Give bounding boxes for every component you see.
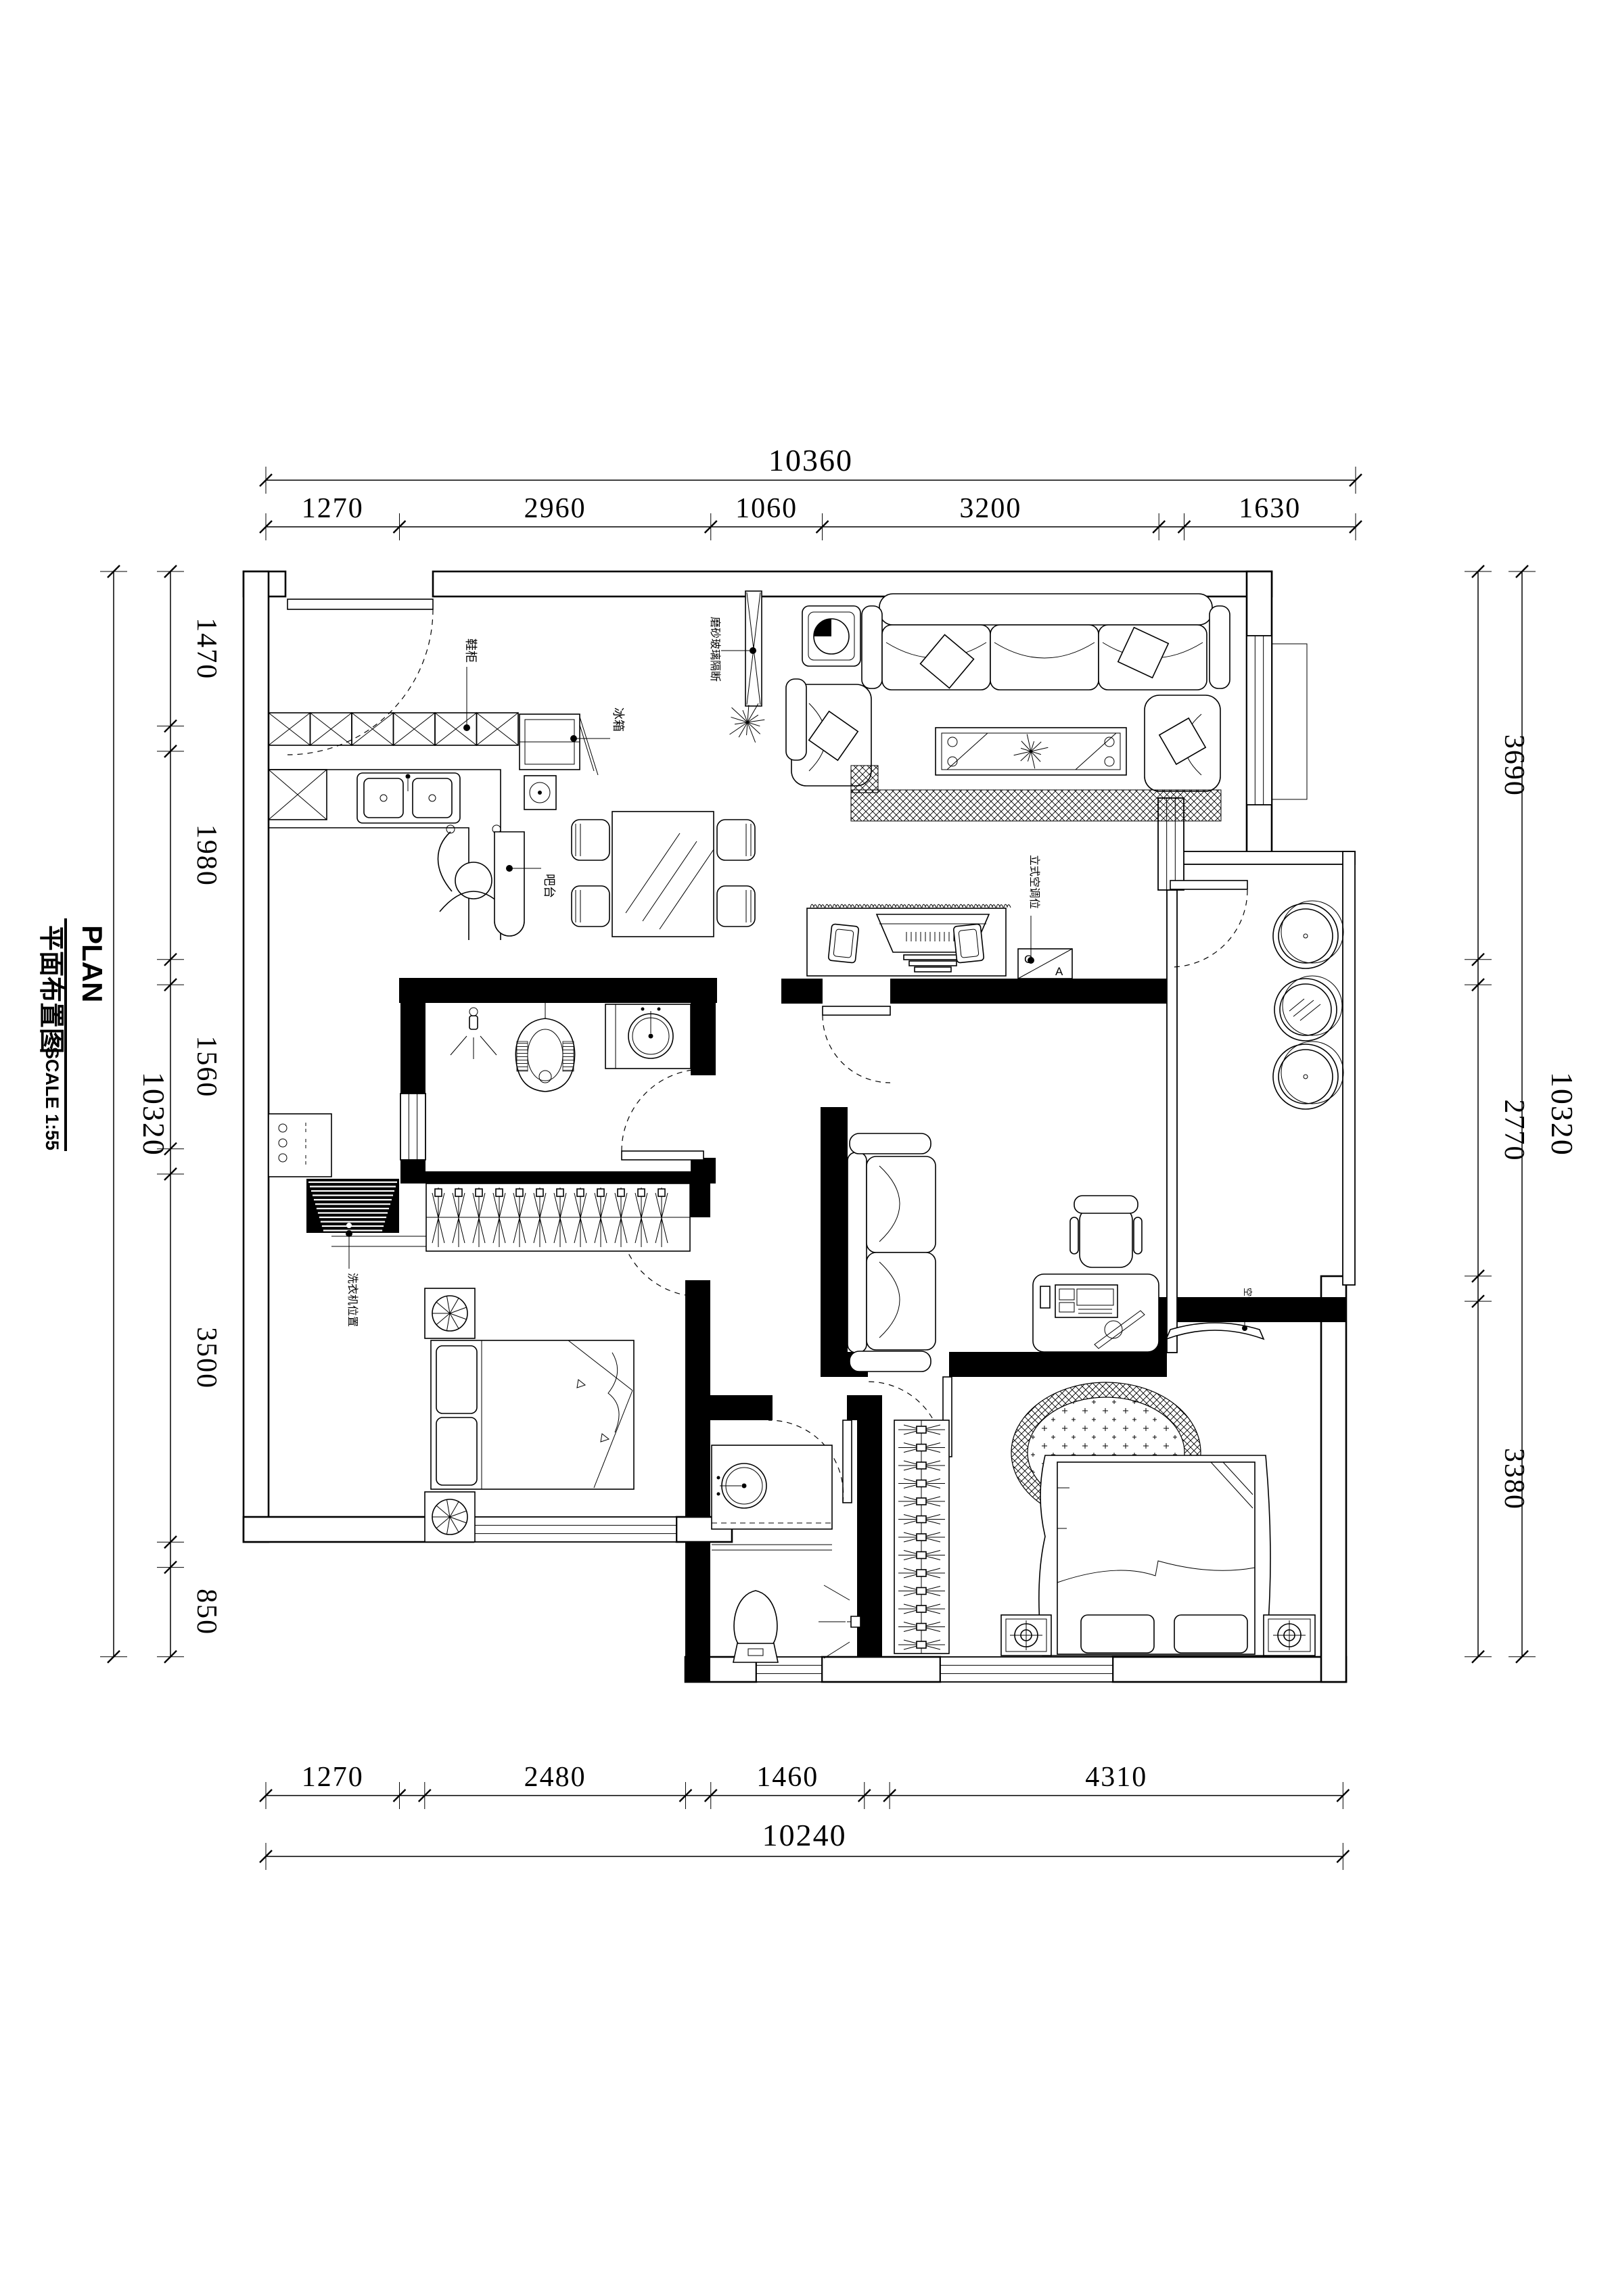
svg-text:洗衣机位置: 洗衣机位置 bbox=[346, 1273, 359, 1327]
side-table-clock bbox=[802, 606, 860, 666]
wall-mid-bottom-b bbox=[949, 1352, 1167, 1377]
svg-text:3500: 3500 bbox=[191, 1327, 222, 1389]
svg-text:4310: 4310 bbox=[1085, 1762, 1147, 1793]
wall-tv-a bbox=[781, 979, 823, 1004]
svg-text:3690: 3690 bbox=[1498, 734, 1529, 797]
wall-bath1-bottom bbox=[400, 1171, 716, 1184]
wall-bath2-left bbox=[685, 1542, 710, 1682]
wall-tv-c bbox=[1109, 979, 1167, 1004]
svg-text:吧台: 吧台 bbox=[543, 874, 556, 898]
shower-head-icon bbox=[451, 1008, 497, 1059]
bed2 bbox=[431, 1340, 634, 1489]
wall-left bbox=[244, 571, 269, 1542]
mid-room-door bbox=[823, 1006, 890, 1083]
wall-bed2-right bbox=[685, 1280, 710, 1517]
computer-desk bbox=[1033, 1274, 1159, 1352]
shoe-cabinet bbox=[269, 713, 518, 745]
wall-ac-unit bbox=[1166, 1323, 1264, 1339]
wall-balcony-right bbox=[1343, 851, 1355, 1285]
sofa-three-seat bbox=[862, 594, 1230, 690]
wall-bath1-right-a bbox=[691, 1003, 716, 1075]
living-room: C A bbox=[730, 591, 1230, 979]
plant-pot bbox=[1274, 976, 1342, 1041]
dining-chair bbox=[572, 820, 609, 860]
balcony-door bbox=[1170, 881, 1247, 967]
svg-text:1470: 1470 bbox=[191, 617, 222, 680]
svg-text:磨砂玻璃隔断: 磨砂玻璃隔断 bbox=[709, 617, 721, 682]
svg-text:3380: 3380 bbox=[1498, 1448, 1529, 1510]
svg-text:冰箱: 冰箱 bbox=[612, 707, 625, 732]
wall-tv-b bbox=[890, 979, 1109, 1004]
nightstand bbox=[425, 1492, 475, 1542]
svg-text:10360: 10360 bbox=[768, 443, 853, 477]
plant bbox=[730, 703, 765, 742]
bar-counter bbox=[494, 832, 524, 936]
bath1-door bbox=[622, 1069, 704, 1160]
svg-text:1270: 1270 bbox=[302, 1762, 364, 1793]
wall-bath1-top bbox=[399, 978, 717, 1003]
title-scale: SCALE 1:55 bbox=[42, 1047, 62, 1150]
wall-bath1-left-a bbox=[400, 1003, 425, 1094]
dining-chair bbox=[572, 886, 609, 927]
bay-window-outline bbox=[1272, 644, 1307, 799]
svg-text:850: 850 bbox=[191, 1589, 222, 1635]
svg-text:1270: 1270 bbox=[302, 493, 364, 524]
dining-set bbox=[572, 812, 755, 937]
svg-text:1980: 1980 bbox=[191, 824, 222, 887]
master-wardrobe bbox=[894, 1420, 949, 1654]
wall-right-lower bbox=[1321, 1276, 1346, 1682]
label-washer: 洗衣机位置 bbox=[346, 1230, 359, 1327]
label-floor-ac: 立式空调位 bbox=[1028, 855, 1040, 964]
fridge bbox=[520, 714, 598, 775]
desk-chair bbox=[1070, 1196, 1142, 1267]
bath1-basin bbox=[605, 1004, 691, 1069]
shower-head-icon bbox=[819, 1585, 860, 1658]
title-block: PLAN 平面布置图 SCALE 1:55 bbox=[37, 918, 108, 1151]
speaker bbox=[953, 924, 984, 963]
washing-machine bbox=[306, 1179, 399, 1233]
nightstand bbox=[1001, 1615, 1051, 1656]
master-bed bbox=[1039, 1455, 1270, 1656]
title-plan-en: PLAN bbox=[76, 925, 108, 1002]
svg-text:2480: 2480 bbox=[524, 1762, 586, 1793]
kitchen-sink bbox=[357, 773, 460, 823]
dining-chair bbox=[717, 886, 755, 927]
speaker bbox=[828, 924, 858, 963]
armchair bbox=[1145, 695, 1220, 791]
wall-bath2-top-b bbox=[847, 1395, 882, 1420]
wall-mid-left bbox=[821, 1107, 848, 1352]
middle-room bbox=[848, 1133, 1159, 1372]
two-seat-sofa bbox=[848, 1133, 936, 1372]
wall-bottom-b bbox=[822, 1657, 940, 1682]
kitchen-counter bbox=[269, 770, 509, 940]
svg-text:1460: 1460 bbox=[756, 1762, 819, 1793]
wall-balcony-top bbox=[1177, 851, 1355, 864]
plant-pot bbox=[1273, 1041, 1343, 1109]
title-plan-cn: 平面布置图 bbox=[37, 925, 65, 1054]
svg-text:1060: 1060 bbox=[735, 493, 798, 524]
wall-balcony-left bbox=[1167, 890, 1177, 1353]
svg-text:10320: 10320 bbox=[1545, 1072, 1580, 1156]
bath2-basin bbox=[712, 1445, 832, 1529]
floorplan-page: PLAN 平面布置图 SCALE 1:55 127029601060320016… bbox=[0, 0, 1612, 2296]
balcony bbox=[1273, 901, 1343, 1109]
ac-letter-a: A bbox=[1055, 965, 1063, 978]
plant-pot bbox=[1273, 901, 1343, 968]
coffee-table bbox=[936, 728, 1126, 775]
nightstand bbox=[425, 1288, 475, 1338]
wall-top bbox=[433, 571, 1272, 596]
svg-text:10320: 10320 bbox=[137, 1072, 171, 1156]
toilet bbox=[733, 1591, 778, 1662]
svg-text:1560: 1560 bbox=[191, 1035, 222, 1098]
bathroom-2 bbox=[712, 1445, 860, 1662]
wall-bottom-c bbox=[1113, 1657, 1346, 1682]
nightstand bbox=[1264, 1615, 1315, 1656]
svg-text:2960: 2960 bbox=[524, 493, 586, 524]
towel-bar bbox=[712, 1545, 832, 1550]
svg-text:2770: 2770 bbox=[1498, 1099, 1529, 1161]
svg-text:10240: 10240 bbox=[762, 1818, 847, 1852]
floor-plan-drawing: PLAN 平面布置图 SCALE 1:55 127029601060320016… bbox=[0, 0, 1612, 2296]
wall-bath2-top-a bbox=[710, 1395, 773, 1420]
svg-text:鞋柜: 鞋柜 bbox=[464, 638, 478, 663]
tv-cabinet bbox=[807, 904, 1011, 976]
svg-text:空调: 空调 bbox=[1243, 1288, 1253, 1305]
small-appliance bbox=[524, 776, 556, 810]
bedroom-2 bbox=[425, 1288, 634, 1542]
dining-chair bbox=[717, 820, 755, 860]
svg-text:1630: 1630 bbox=[1239, 493, 1301, 524]
bed2-wardrobe bbox=[426, 1184, 690, 1251]
floor-ac-unit: C A bbox=[1018, 949, 1072, 979]
svg-text:3200: 3200 bbox=[959, 493, 1021, 524]
svg-text:立式空调位: 立式空调位 bbox=[1028, 855, 1040, 909]
